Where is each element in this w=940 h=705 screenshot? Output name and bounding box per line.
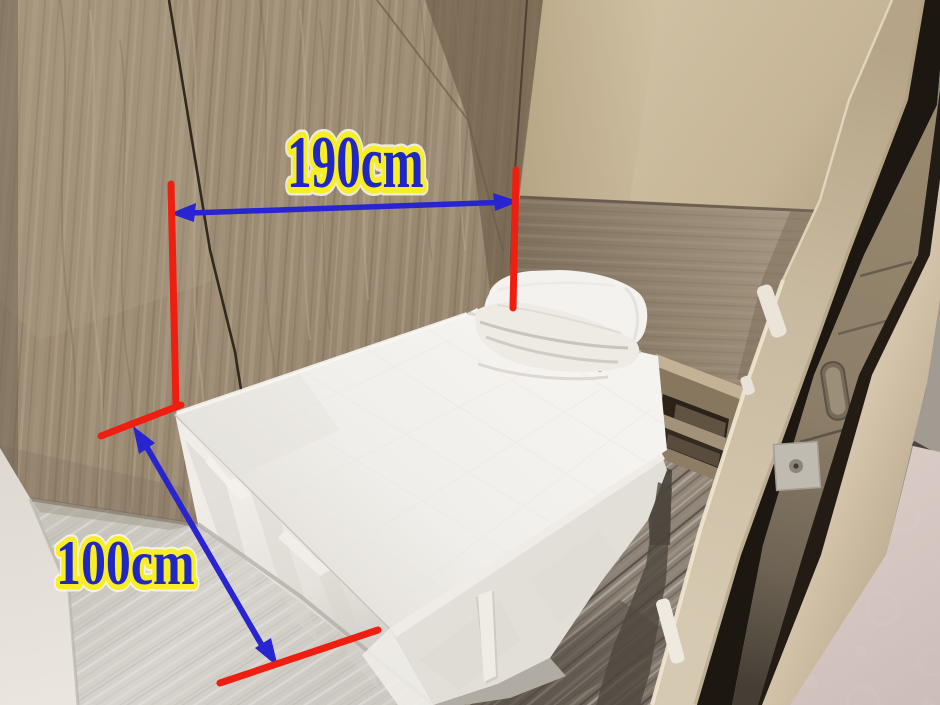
svg-text:190cm: 190cm — [287, 121, 424, 203]
svg-text:100cm: 100cm — [56, 528, 195, 598]
